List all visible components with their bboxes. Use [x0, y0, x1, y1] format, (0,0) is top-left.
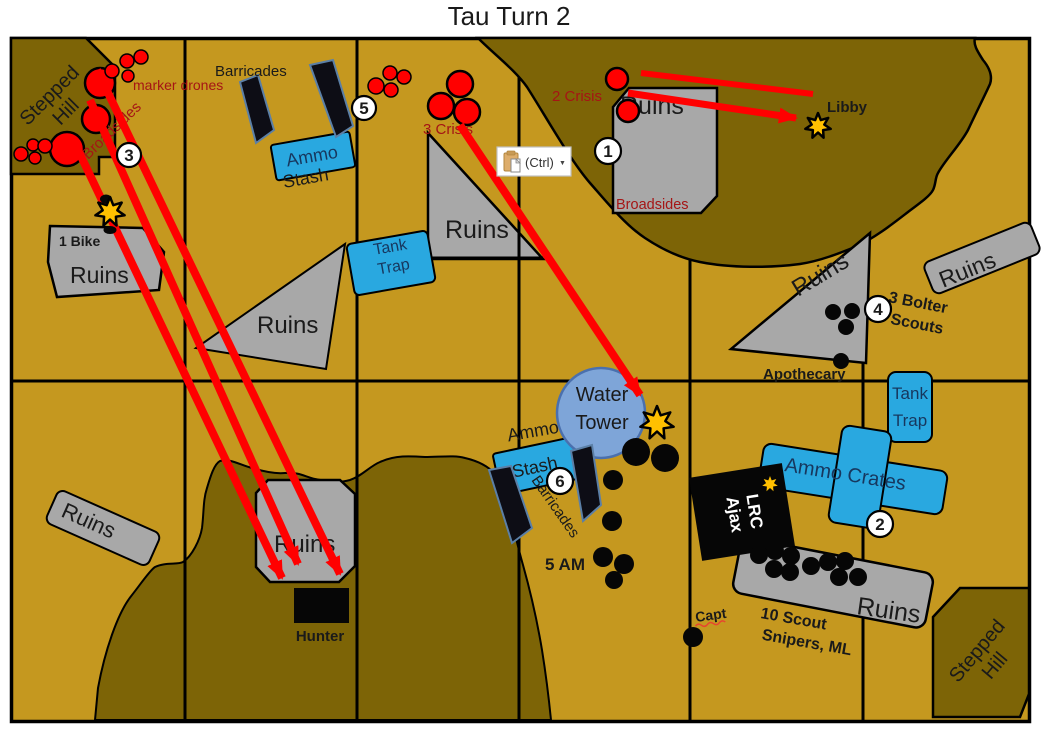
bike-label: 1 Bike	[59, 233, 100, 249]
page-title: Tau Turn 2	[448, 1, 571, 31]
hunter-label: Hunter	[296, 628, 344, 645]
badge-5: 5	[352, 96, 376, 120]
barricades-top-label: Barricades	[215, 63, 287, 80]
svg-text:2: 2	[875, 515, 884, 534]
paste-options-caret[interactable]: ▼	[559, 160, 566, 167]
lrc-ajax-label: LRCAjax	[722, 492, 766, 534]
broadsides-ruins-label: Broadsides	[616, 197, 689, 213]
svg-text:1: 1	[603, 142, 612, 161]
libby-label: Libby	[827, 99, 868, 116]
svg-text:4: 4	[873, 300, 883, 319]
marker-drones-label: marker drones	[133, 77, 223, 93]
badge-2: 2	[867, 511, 893, 537]
badge-1: 1	[595, 138, 621, 164]
ruins-bike-label: Ruins	[70, 262, 129, 288]
captain-dot	[683, 627, 703, 647]
ruins-left-triangle-label: Ruins	[257, 312, 318, 339]
hunter-tank	[294, 588, 349, 623]
badge-4: 4	[865, 296, 891, 322]
tank-trap-right	[888, 372, 932, 442]
crisis-2-label: 2 Crisis	[552, 88, 602, 105]
svg-text:3: 3	[124, 146, 133, 165]
badge-6: 6	[547, 468, 573, 494]
ruins-center-label: Ruins	[445, 216, 509, 244]
svg-text:5: 5	[359, 99, 368, 118]
svg-text:6: 6	[555, 472, 564, 491]
clipboard-icon	[504, 151, 520, 172]
apothecary-label: Apothecary	[763, 366, 846, 383]
paste-options-button[interactable]: (Ctrl) ▼	[497, 147, 571, 176]
slide: Tau Turn 2 SteppedHill SteppedHill Ruins…	[0, 0, 1041, 732]
badge-3: 3	[117, 143, 141, 167]
paste-options-label: (Ctrl)	[525, 155, 554, 170]
assault-marines-label: 5 AM	[545, 555, 585, 574]
